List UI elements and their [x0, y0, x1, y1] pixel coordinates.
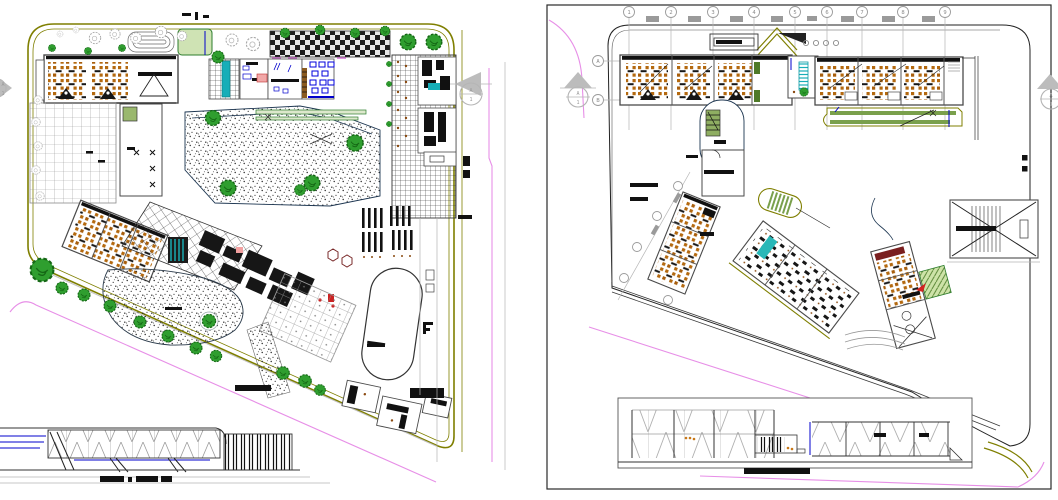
lobby	[788, 56, 818, 98]
pond-edge-below	[871, 198, 893, 240]
drawing-area: A 1 A 1	[0, 0, 1058, 500]
grid-bubble-6: 6	[825, 10, 828, 16]
classroom-block	[36, 55, 178, 103]
west-elevation	[0, 428, 330, 483]
stair-hall-right	[947, 155, 1040, 262]
ramp-capsule	[756, 186, 805, 221]
marker-letter: A	[576, 91, 579, 97]
marker-number: 1	[576, 100, 579, 106]
grid-bubble-7: 7	[860, 10, 863, 16]
marker-number: 1	[1, 91, 4, 97]
service-block	[386, 55, 472, 219]
section-marker-right: A 1	[1037, 74, 1058, 109]
south-elevation	[618, 398, 972, 474]
marker-letter: A	[1049, 93, 1052, 99]
marker-letter: A	[469, 88, 472, 94]
planter-strip	[824, 107, 963, 127]
running-track	[358, 265, 425, 383]
stair-hall	[120, 104, 162, 196]
elevation-title-bar	[744, 468, 810, 474]
grid-bubble-2: 2	[669, 10, 672, 16]
grid-bubble-1: 1	[627, 10, 630, 16]
first-floor-plan: 1 2 3 4 5 6 7 8 9 A B	[547, 5, 1058, 489]
road-olive-corner	[984, 442, 1032, 478]
road-magenta-vertical	[489, 68, 492, 462]
elevation-title-bar	[100, 476, 124, 482]
marker-number: 1	[1049, 102, 1052, 108]
grid-bubble-9: 9	[943, 10, 946, 16]
angled-wing-left	[648, 192, 720, 294]
admin-rooms	[209, 59, 334, 99]
cad-sheet: A 1 A 1	[0, 0, 1058, 500]
site-plan: A 1 A 1	[0, 12, 505, 483]
section-marker-left: A 1	[560, 72, 596, 107]
entry-atrium	[710, 28, 839, 56]
tiled-plaza	[30, 103, 116, 203]
section-marker-left: A 1	[0, 79, 12, 97]
kiosk-tables	[328, 249, 352, 267]
grid-bubble-8: 8	[901, 10, 904, 16]
circulation-spine	[686, 100, 744, 196]
central-wing	[729, 220, 862, 339]
marker-number: 1	[469, 97, 472, 103]
marker-letter: A	[1, 82, 4, 88]
road-magenta-diagonal	[589, 327, 810, 398]
grid-bubble-3: 3	[711, 10, 714, 16]
classroom-bar-right	[815, 56, 978, 140]
grid-bubble-5: 5	[793, 10, 796, 16]
classroom-bar-left	[620, 55, 792, 105]
